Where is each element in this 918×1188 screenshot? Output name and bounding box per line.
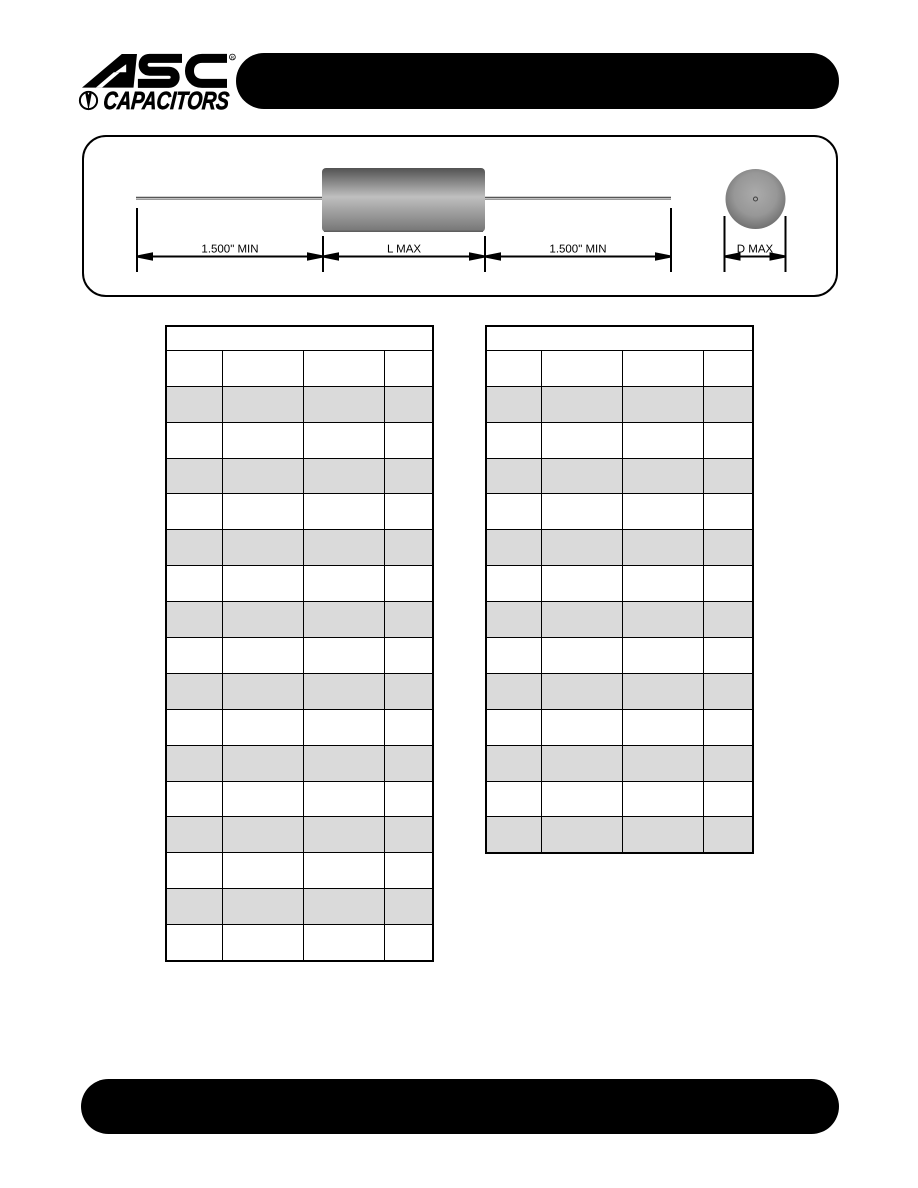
svg-text:1.500" MIN: 1.500" MIN: [201, 243, 258, 255]
svg-text:1.500" MIN: 1.500" MIN: [549, 243, 606, 255]
svg-text:CAPACITORS: CAPACITORS: [102, 87, 230, 115]
svg-text:L MAX: L MAX: [387, 243, 421, 255]
svg-text:D MAX: D MAX: [737, 243, 774, 255]
